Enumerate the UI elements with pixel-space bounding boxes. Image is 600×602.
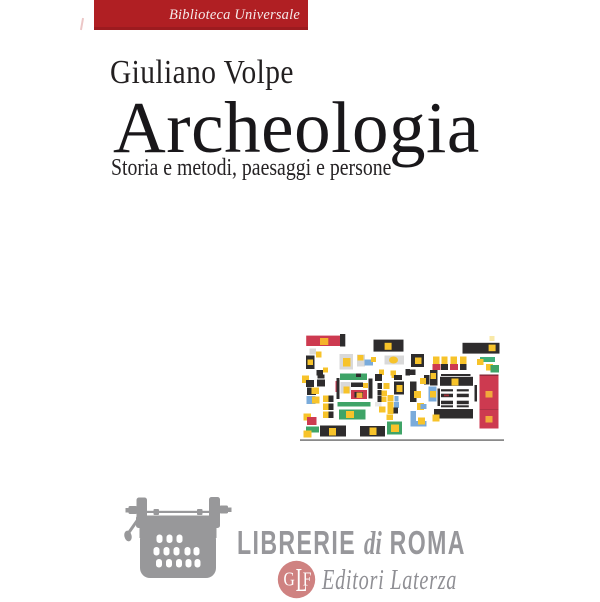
svg-text:G: G bbox=[284, 568, 295, 590]
svg-text:F: F bbox=[303, 568, 312, 590]
